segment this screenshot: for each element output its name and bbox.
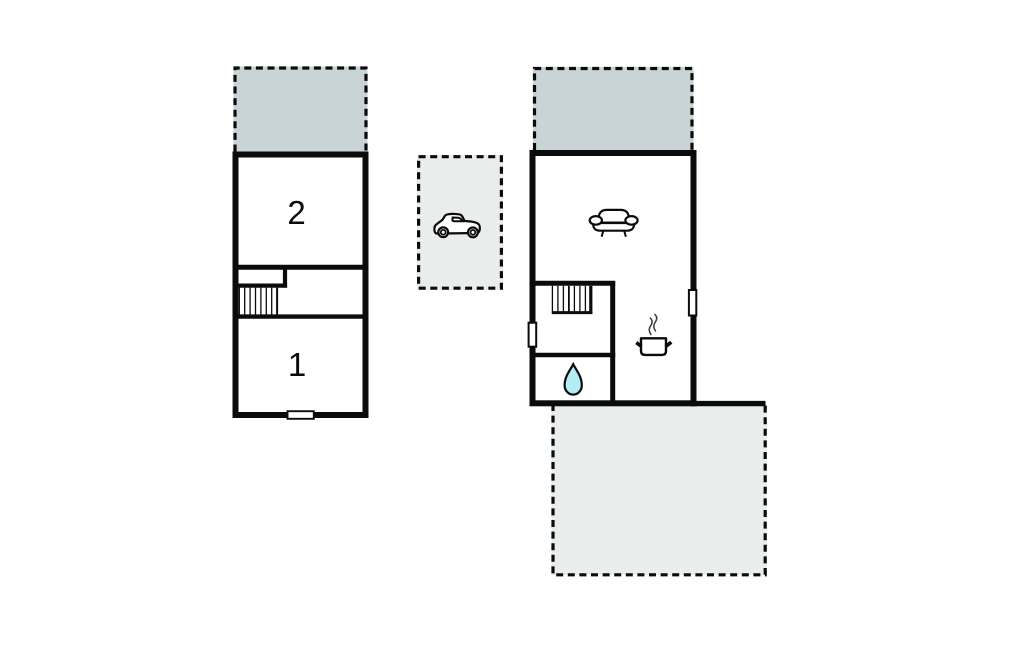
svg-text:1: 1	[288, 346, 306, 383]
svg-text:2: 2	[287, 194, 305, 231]
